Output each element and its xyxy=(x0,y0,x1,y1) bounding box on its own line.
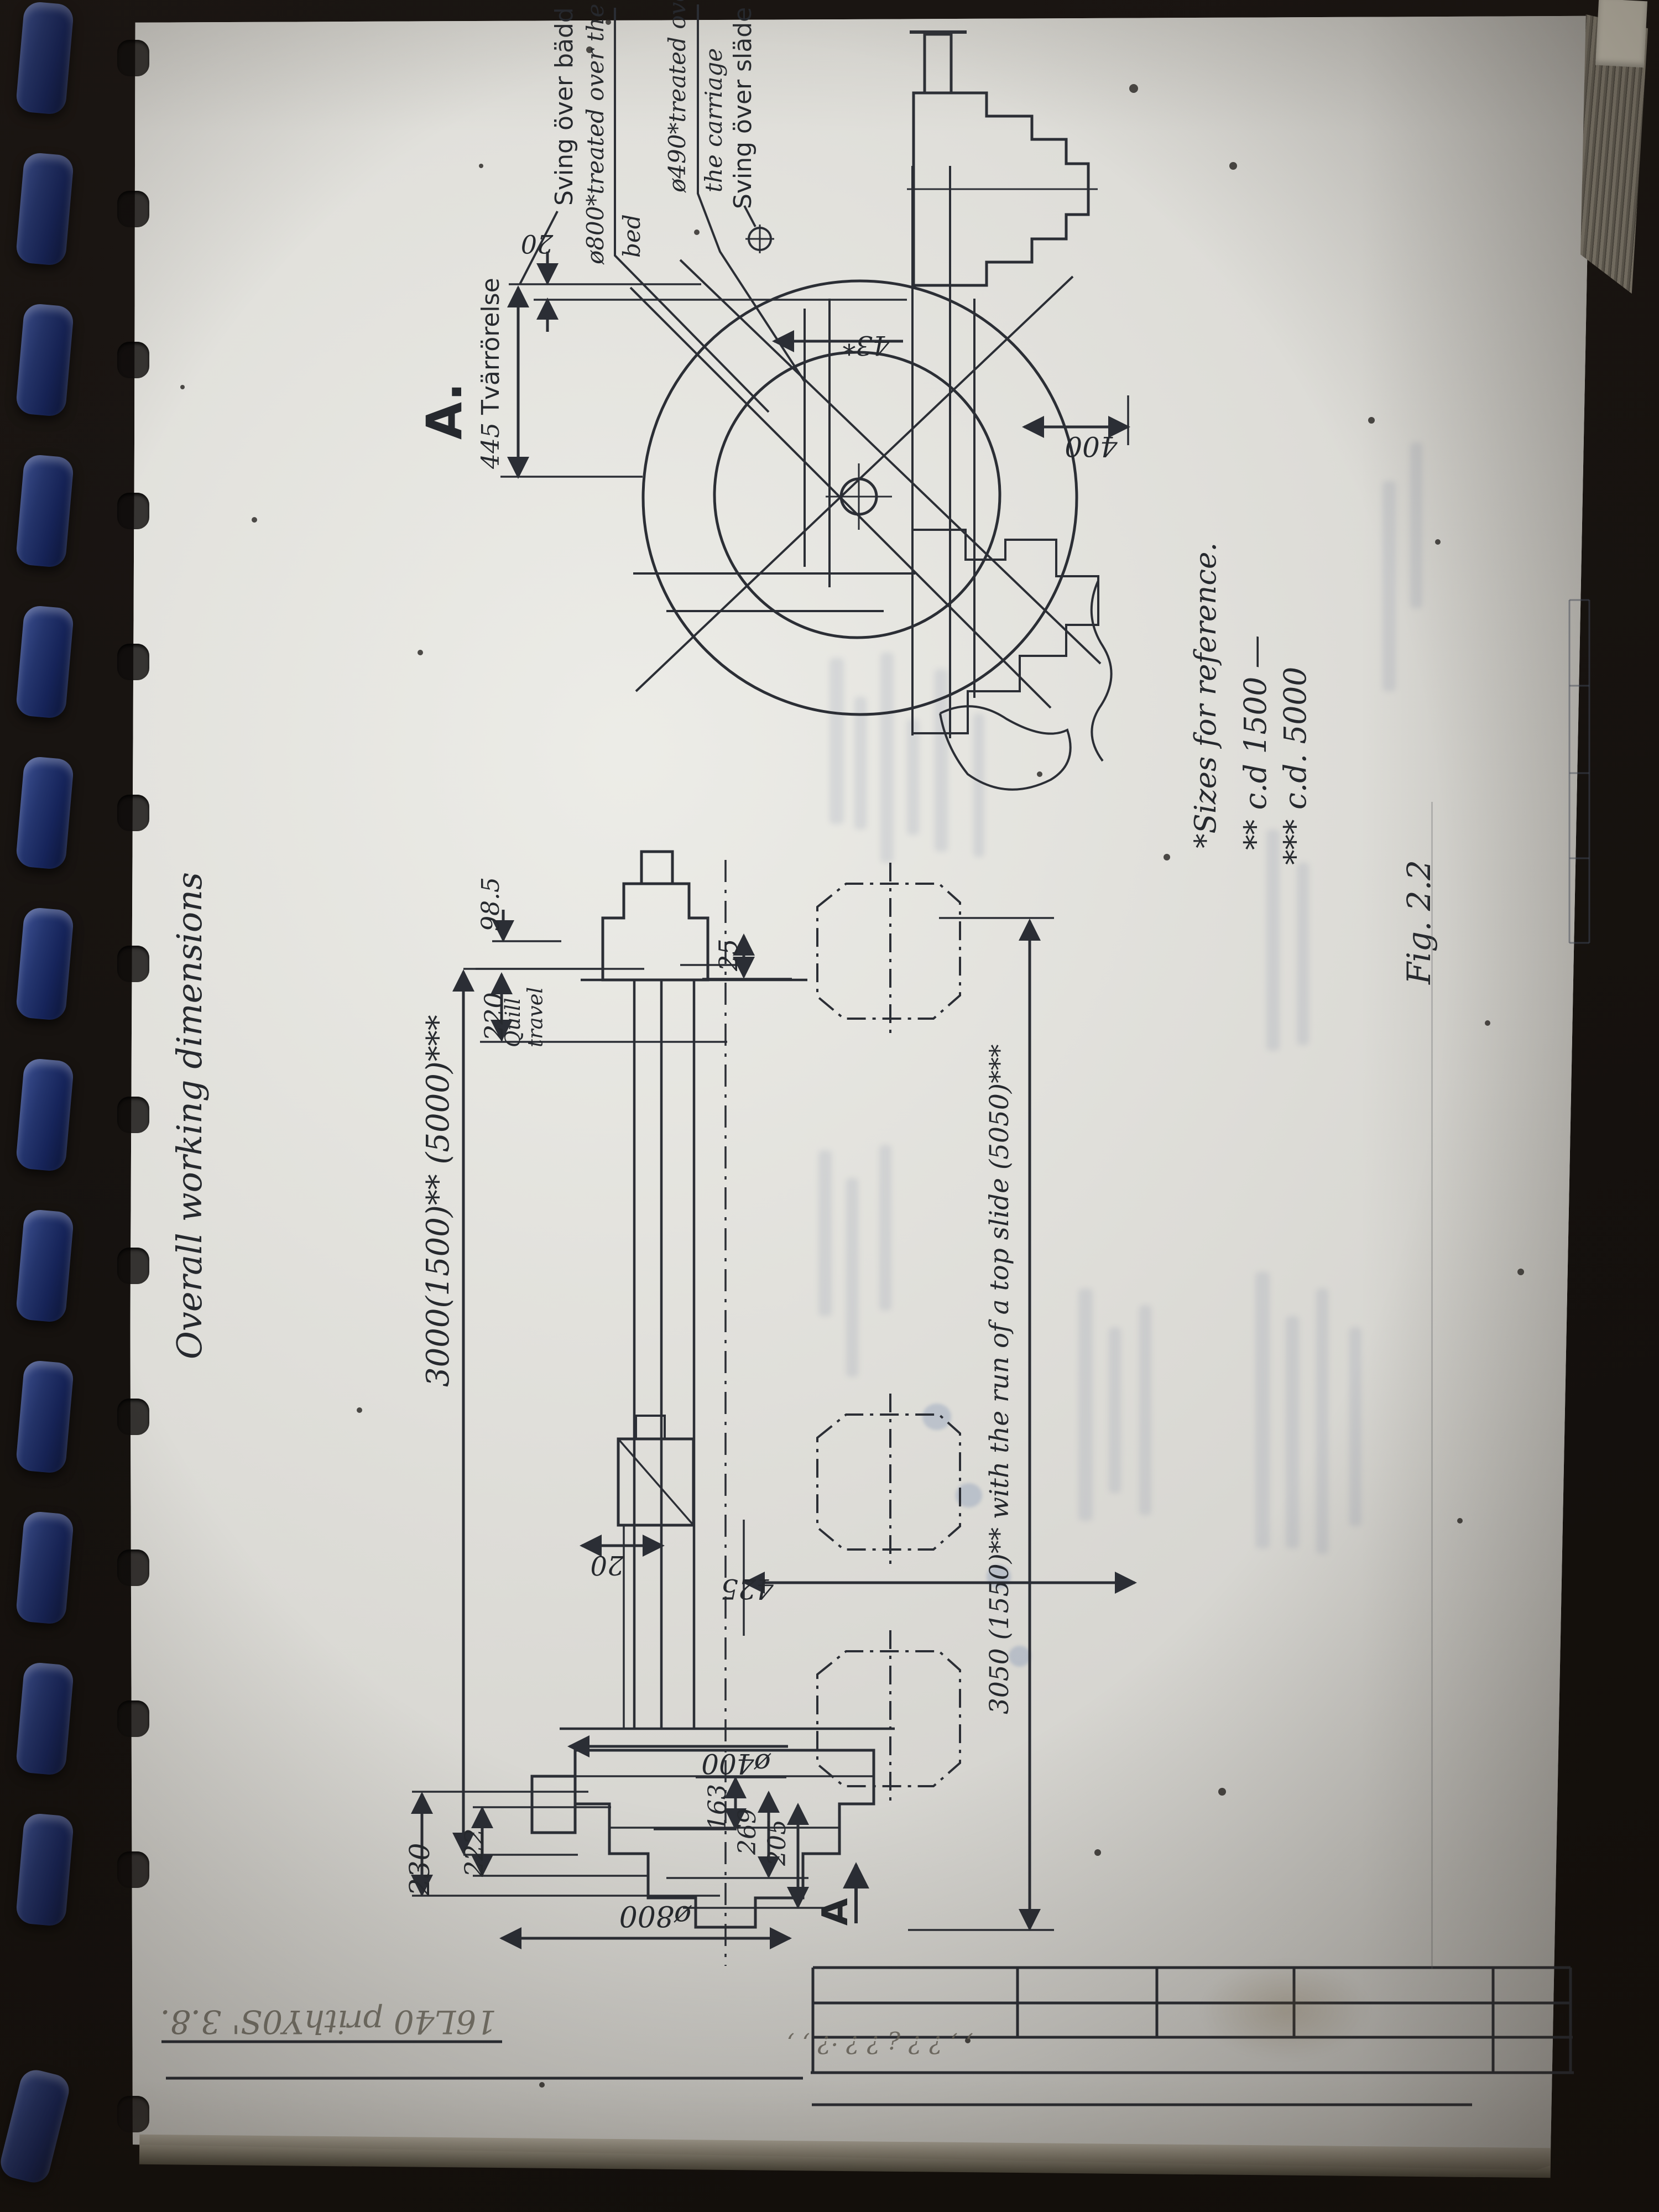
dim-between-centers: 3000(1500)** (5000)*** xyxy=(420,990,462,1387)
dim-cross-travel: 445 Tvärrörelse xyxy=(477,303,515,469)
dim-222: 222 xyxy=(459,1804,492,1877)
pencil-note: 16L40 prithY0S' 3.8. xyxy=(165,1981,497,2041)
dim-43: 43* xyxy=(841,327,891,361)
dim-20-mid: 20 xyxy=(580,1547,635,1580)
label-swing-over-carriage-line1: ø490*treated over xyxy=(664,1,695,192)
dim-25: 25 xyxy=(713,914,745,971)
label-quill-travel: Quill travel xyxy=(502,974,549,1047)
dim-with-top-slide: 3050 (1550)** with the run of a top slid… xyxy=(984,1008,1027,1714)
dim-d800: ø800 xyxy=(597,1899,713,1932)
section-arrow-label: A xyxy=(815,1878,852,1926)
dim-269: 269 xyxy=(733,1790,765,1855)
dim-163: 163 xyxy=(703,1773,735,1830)
note-sizes-for-reference: *Sizes for reference. xyxy=(1189,519,1230,848)
label-swing-over-slide-sv: Sving över släde xyxy=(729,49,762,209)
figure-caption: Fig. 2.2 xyxy=(1400,858,1444,984)
dim-400: 400 xyxy=(1063,432,1119,462)
label-swing-over-bed-sv: Sving över bädd xyxy=(550,11,583,206)
paper-stain xyxy=(1200,1960,1371,2060)
note-cd-5000: *** c.d. 5000 xyxy=(1277,582,1322,865)
label-swing-over-bed-en-line1: ø800*treated over the xyxy=(582,6,614,264)
dim-425: 425 xyxy=(703,1569,791,1605)
dim-230: 230 xyxy=(404,1795,439,1896)
dim-d400: ø400 xyxy=(685,1749,787,1780)
dim-205: 205 xyxy=(763,1801,795,1866)
page-title: Overall working dimensions xyxy=(169,873,216,1359)
photo-of-manual-page: Overall working dimensions Sving över bä… xyxy=(0,0,1659,2212)
label-swing-over-bed-en-line2: bed xyxy=(618,155,647,258)
view-label-A: A. xyxy=(416,362,482,440)
label-tvarrorelse: Tvärrörelse xyxy=(477,278,505,415)
dim-445: 445 xyxy=(477,422,505,469)
label-swing-over-carriage-line2: the carriage xyxy=(700,34,731,192)
paper-crease xyxy=(1431,802,1433,1969)
dim-20-top: 20 xyxy=(520,231,554,259)
note-cd-1500: ** c.d 1500 ― xyxy=(1238,556,1280,850)
dim-quill-98: 98.5 xyxy=(477,878,505,931)
pencil-scribbles: ‚ ‚ ? ? ¿ ? ? ·? ‚ ‚ xyxy=(807,2018,973,2058)
